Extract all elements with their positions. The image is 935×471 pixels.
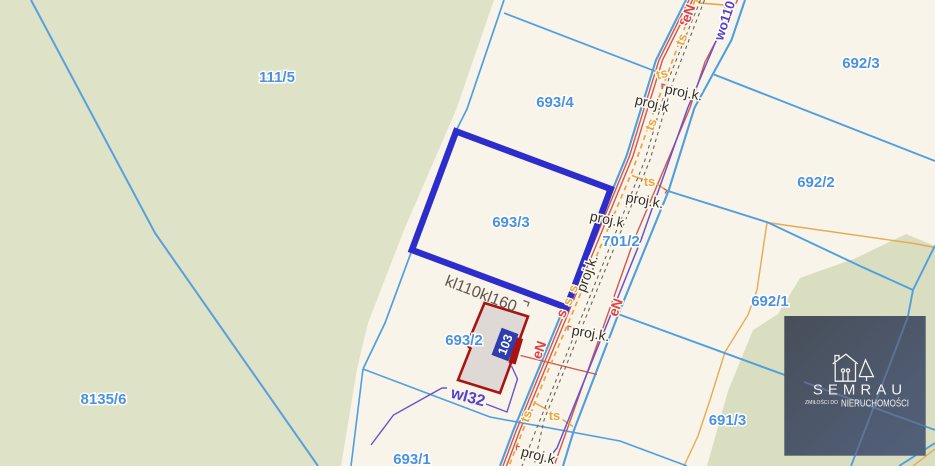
svg-text:693/1: 693/1: [393, 451, 431, 466]
svg-text:ZMIŁOŚCI DO: ZMIŁOŚCI DO: [805, 398, 839, 406]
svg-text:692/3: 692/3: [842, 55, 880, 72]
svg-text:8135/6: 8135/6: [81, 391, 127, 408]
svg-text:111/5: 111/5: [259, 69, 295, 86]
svg-text:ts: ts: [644, 174, 656, 189]
svg-text:693/2: 693/2: [445, 332, 483, 349]
svg-text:NIERUCHOMOŚCI: NIERUCHOMOŚCI: [841, 397, 909, 410]
svg-text:692/1: 692/1: [751, 293, 789, 310]
svg-text:693/4: 693/4: [536, 94, 574, 111]
svg-text:691/3: 691/3: [709, 412, 747, 429]
svg-text:ts: ts: [549, 408, 561, 423]
svg-text:701/2: 701/2: [602, 233, 640, 250]
svg-text:693/3: 693/3: [492, 214, 530, 231]
svg-text:692/2: 692/2: [797, 174, 835, 191]
svg-text:SEMRAU: SEMRAU: [813, 382, 907, 399]
